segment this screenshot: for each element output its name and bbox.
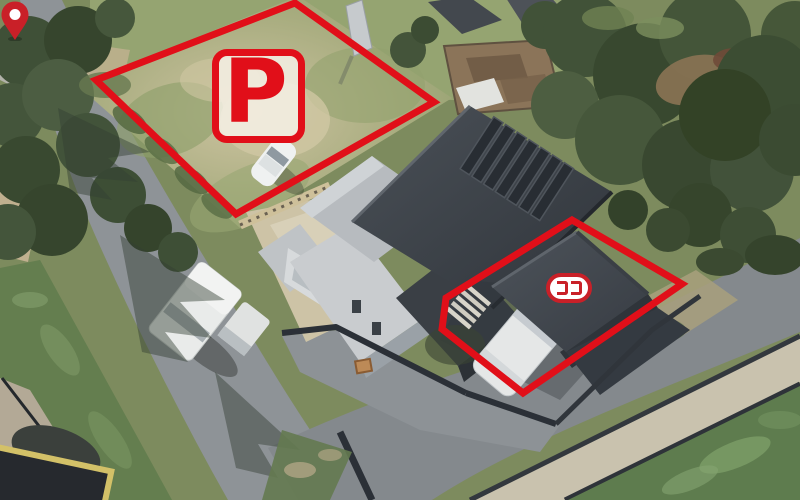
aerial-photo xyxy=(0,0,800,500)
pin-dot xyxy=(10,9,21,20)
katakana-ko-glyph xyxy=(571,281,582,295)
pin-body xyxy=(2,2,29,41)
location-pin-icon xyxy=(0,0,30,41)
parking-sign: P xyxy=(212,49,305,143)
manhole xyxy=(355,359,372,373)
parking-sign-label: P xyxy=(223,48,288,136)
katakana-ko-glyph xyxy=(557,281,568,295)
destination-label xyxy=(546,273,592,303)
aerial-map-view: P xyxy=(0,0,800,500)
